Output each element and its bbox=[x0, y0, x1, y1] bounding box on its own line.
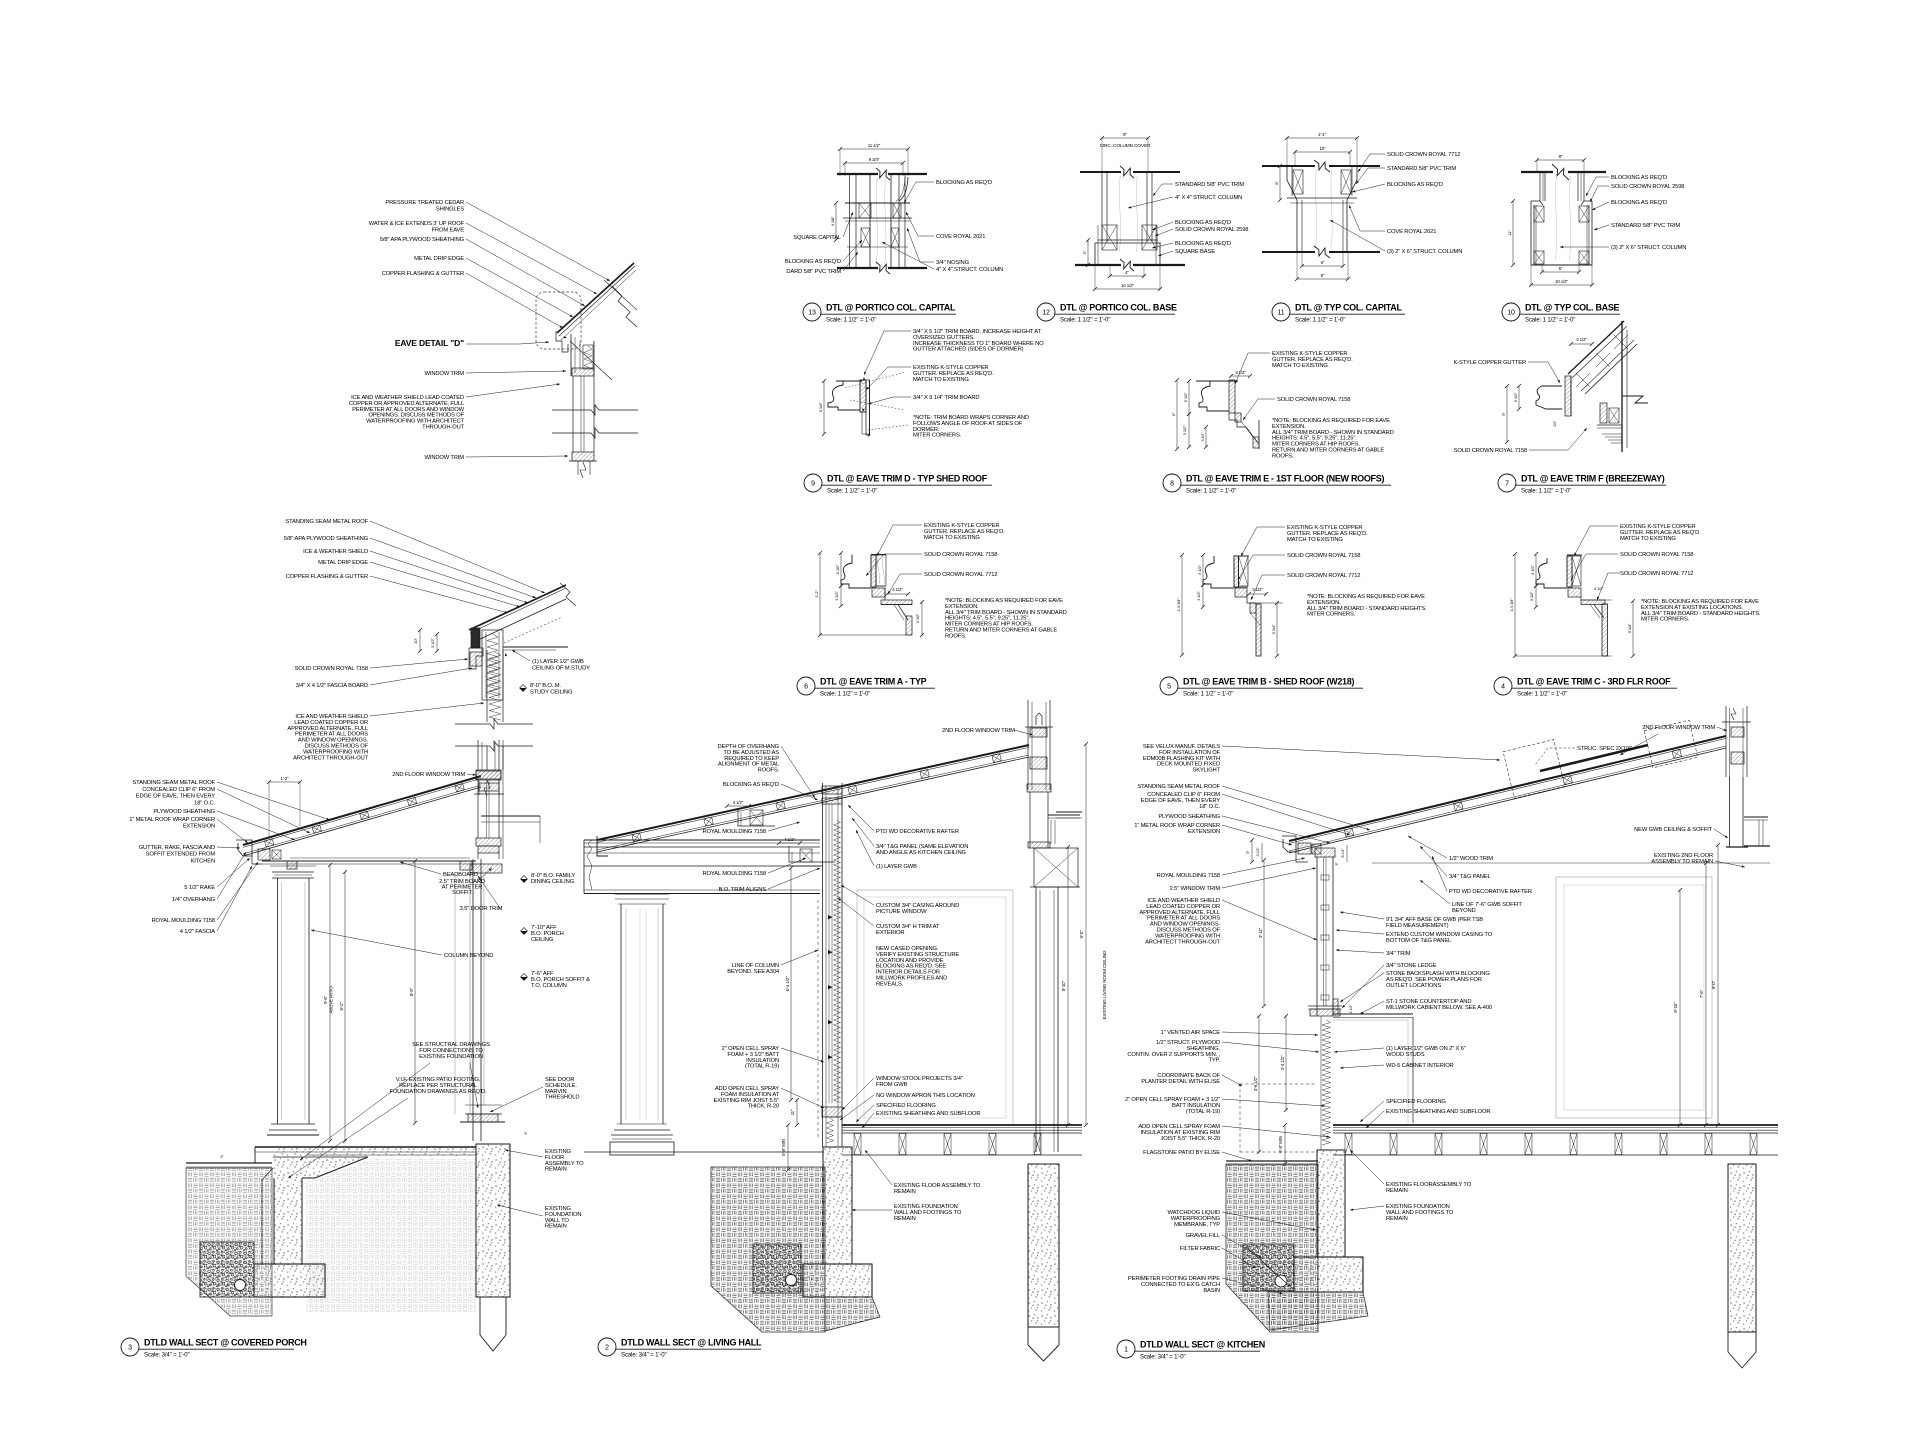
svg-text:6": 6" bbox=[1321, 260, 1325, 265]
svg-text:WINDOW TRIM: WINDOW TRIM bbox=[425, 455, 465, 461]
svg-text:SQUARE BASE: SQUARE BASE bbox=[1175, 249, 1215, 255]
svg-text:SOLID CROWN ROYAL 7158: SOLID CROWN ROYAL 7158 bbox=[1454, 448, 1527, 454]
svg-text:11": 11" bbox=[790, 1109, 795, 1115]
svg-text:DTL @ EAVE TRIM C - 3RD FLR RO: DTL @ EAVE TRIM C - 3RD FLR ROOF bbox=[1517, 677, 1671, 687]
svg-text:1/4" OVERHANG: 1/4" OVERHANG bbox=[172, 897, 216, 903]
svg-text:ROYAL MOULDING 7158: ROYAL MOULDING 7158 bbox=[702, 829, 766, 835]
svg-text:8 1/4": 8 1/4" bbox=[1341, 848, 1345, 858]
svg-text:9 1/4": 9 1/4" bbox=[1627, 623, 1632, 633]
svg-text:3/4" NOSING: 3/4" NOSING bbox=[936, 260, 970, 266]
svg-text:Scale: 1 1/2" = 1'-0": Scale: 1 1/2" = 1'-0" bbox=[827, 488, 877, 495]
svg-text:3: 3 bbox=[128, 1345, 132, 1352]
svg-text:BLOCKING AS REQ’D: BLOCKING AS REQ’D bbox=[1387, 182, 1443, 188]
svg-text:DTL @ TYP COL. CAPITAL: DTL @ TYP COL. CAPITAL bbox=[1295, 303, 1402, 313]
svg-text:Scale: 3/4" = 1'-0": Scale: 3/4" = 1'-0" bbox=[144, 1352, 190, 1359]
svg-text:SOLID CROWN ROYAL 7158: SOLID CROWN ROYAL 7158 bbox=[295, 666, 368, 672]
svg-text:DTL @ TYP COL. BASE: DTL @ TYP COL. BASE bbox=[1525, 303, 1620, 313]
svg-text:EXISTING LIVING ROOM CEILING: EXISTING LIVING ROOM CEILING bbox=[1102, 950, 1107, 1019]
svg-text:1" VENTED AIR SPACE: 1" VENTED AIR SPACE bbox=[1161, 1030, 1221, 1036]
svg-text:4 1/2": 4 1/2" bbox=[892, 587, 903, 592]
svg-text:Scale: 1 1/2" = 1'-0": Scale: 1 1/2" = 1'-0" bbox=[1060, 317, 1110, 324]
svg-text:4 1/8": 4 1/8" bbox=[830, 216, 835, 226]
svg-text:STANDARD 5/8" PVC TRIM: STANDARD 5/8" PVC TRIM bbox=[1175, 182, 1244, 188]
svg-text:LINE OF COLUMNBEYOND. SEE A304: LINE OF COLUMNBEYOND. SEE A304 bbox=[727, 963, 780, 975]
svg-text:PTD WD DECORATIVE RAFTER: PTD WD DECORATIVE RAFTER bbox=[1449, 889, 1532, 895]
svg-text:DTL @ EAVE TRIM B - SHED ROOF: DTL @ EAVE TRIM B - SHED ROOF (W218) bbox=[1183, 677, 1354, 687]
svg-text:6: 6 bbox=[804, 684, 808, 691]
svg-text:SOLID CROWN ROYAL 7158: SOLID CROWN ROYAL 7158 bbox=[1620, 552, 1693, 558]
svg-text:V.I.F. EXISTING PATIO FOOTING.: V.I.F. EXISTING PATIO FOOTING.REPLACE PE… bbox=[389, 1077, 487, 1095]
svg-text:FLAGSTONE PATIO BY ELISE: FLAGSTONE PATIO BY ELISE bbox=[1143, 1150, 1220, 1156]
svg-text:3 1/2": 3 1/2" bbox=[915, 613, 920, 623]
svg-text:3 1/2": 3 1/2" bbox=[1182, 425, 1187, 435]
svg-text:8'-0": 8'-0" bbox=[1711, 980, 1716, 989]
svg-text:WINDOW TRIM: WINDOW TRIM bbox=[425, 371, 465, 377]
svg-text:Scale: 1 1/2" = 1'-0": Scale: 1 1/2" = 1'-0" bbox=[1521, 488, 1571, 495]
svg-text:WATCHDOG LIQUIDWATERPROOFINGME: WATCHDOG LIQUIDWATERPROOFINGMEMBRANE, TY… bbox=[1168, 1210, 1221, 1228]
svg-text:4": 4" bbox=[1125, 270, 1129, 275]
svg-text:13: 13 bbox=[808, 310, 816, 317]
svg-text:GRAVEL FILL: GRAVEL FILL bbox=[1186, 1233, 1221, 1239]
svg-text:5 1/2": 5 1/2" bbox=[835, 564, 840, 574]
svg-text:(1) LAYER GWB: (1) LAYER GWB bbox=[876, 864, 917, 870]
svg-text:SQUARE CAPITAL: SQUARE CAPITAL bbox=[793, 235, 842, 241]
svg-text:Scale: 1 1/2" = 1'-0": Scale: 1 1/2" = 1'-0" bbox=[826, 317, 876, 324]
svg-text:STANDING SEAM METAL ROOF: STANDING SEAM METAL ROOF bbox=[1137, 784, 1220, 790]
svg-text:STANDARD 5/8" PVC TRIM: STANDARD 5/8" PVC TRIM bbox=[1387, 166, 1456, 172]
svg-text:1'-5 3/4": 1'-5 3/4" bbox=[1509, 598, 1514, 612]
svg-text:6": 6" bbox=[1559, 266, 1563, 271]
svg-text:ROYAL MOULDING 7158: ROYAL MOULDING 7158 bbox=[1156, 873, 1220, 879]
svg-text:DTLD WALL SECT @ LIVING HALL: DTLD WALL SECT @ LIVING HALL bbox=[621, 1338, 762, 1348]
svg-text:4: 4 bbox=[1501, 684, 1505, 691]
svg-text:3 1/2": 3 1/2" bbox=[1256, 847, 1260, 857]
svg-text:11: 11 bbox=[1278, 310, 1285, 317]
svg-text:9'-0": 9'-0" bbox=[1079, 930, 1084, 939]
svg-text:BLOCKING AS REQ’D: BLOCKING AS REQ’D bbox=[785, 259, 841, 265]
svg-text:9 1/4": 9 1/4" bbox=[818, 402, 823, 412]
svg-text:Scale: 1 1/2" = 1'-0": Scale: 1 1/2" = 1'-0" bbox=[1186, 488, 1236, 495]
svg-text:SOLID CROWN ROYAL 7158: SOLID CROWN ROYAL 7158 bbox=[1277, 397, 1350, 403]
svg-text:8'-0" B.O. FAMILYDINING CEILIN: 8'-0" B.O. FAMILYDINING CEILING bbox=[531, 873, 575, 885]
svg-text:Scale: 1 1/2" = 1'-0": Scale: 1 1/2" = 1'-0" bbox=[1295, 317, 1345, 324]
svg-text:B.O. TRIM ALIGNS: B.O. TRIM ALIGNS bbox=[719, 887, 767, 893]
svg-text:8'-1": 8'-1" bbox=[339, 1002, 344, 1011]
svg-text:Scale: 3/4" = 1'-0": Scale: 3/4" = 1'-0" bbox=[1140, 1354, 1186, 1361]
svg-text:BLOCKING AS REQ’D: BLOCKING AS REQ’D bbox=[723, 782, 779, 788]
svg-text:8'-10": 8'-10" bbox=[1061, 980, 1066, 991]
svg-text:Scale: 1 1/2" = 1'-0": Scale: 1 1/2" = 1'-0" bbox=[820, 691, 870, 698]
svg-text:Scale: 1 1/2" = 1'-0": Scale: 1 1/2" = 1'-0" bbox=[1183, 691, 1233, 698]
svg-text:COVE ROYAL 2021: COVE ROYAL 2021 bbox=[936, 234, 985, 240]
svg-text:SPECIFIED FLOORING: SPECIFIED FLOORING bbox=[876, 1103, 936, 1109]
svg-text:SOLID CROWN ROYAL 7712: SOLID CROWN ROYAL 7712 bbox=[924, 572, 997, 578]
svg-text:DTL @ EAVE TRIM F (BREEZEWAY): DTL @ EAVE TRIM F (BREEZEWAY) bbox=[1521, 474, 1665, 484]
svg-text:SOLID CROWN ROYAL 2598: SOLID CROWN ROYAL 2598 bbox=[1611, 184, 1684, 190]
svg-text:4" X 4" STRUCT. COLUMN: 4" X 4" STRUCT. COLUMN bbox=[1175, 195, 1242, 201]
svg-text:1'-2": 1'-2" bbox=[281, 776, 290, 781]
svg-text:DTLD WALL SECT @ KITCHEN: DTLD WALL SECT @ KITCHEN bbox=[1140, 1340, 1265, 1350]
svg-text:SEE STRUCTRAL DRAWINGSFOR CONN: SEE STRUCTRAL DRAWINGSFOR CONNECTIONS TO… bbox=[412, 1042, 490, 1060]
svg-text:10 1/2": 10 1/2" bbox=[1121, 283, 1134, 288]
svg-text:EXISTING 2ND FLOORASSEMBLY TO: EXISTING 2ND FLOORASSEMBLY TO REMAIN bbox=[1651, 853, 1713, 865]
svg-text:BLOCKING AS REQ’D: BLOCKING AS REQ’D bbox=[1611, 175, 1667, 181]
svg-text:STANDARD 5/8" PVC TRIM: STANDARD 5/8" PVC TRIM bbox=[1611, 223, 1680, 229]
svg-text:1'-1": 1'-1" bbox=[1318, 132, 1327, 137]
svg-text:DTL @ PORTICO COL. BASE: DTL @ PORTICO COL. BASE bbox=[1060, 303, 1177, 313]
svg-text:4 1/2": 4 1/2" bbox=[784, 837, 795, 842]
svg-text:5 1/2": 5 1/2" bbox=[1530, 565, 1535, 575]
svg-text:6'-4 1/2": 6'-4 1/2" bbox=[785, 976, 790, 991]
svg-text:10 1/2": 10 1/2" bbox=[1555, 279, 1568, 284]
svg-text:ROYAL MOULDING 7158: ROYAL MOULDING 7158 bbox=[151, 918, 215, 924]
svg-text:1'-5 3/4": 1'-5 3/4" bbox=[1176, 598, 1181, 612]
svg-text:(3) 2" X 6" STRUCT. COLUMN: (3) 2" X 6" STRUCT. COLUMN bbox=[1611, 245, 1686, 251]
svg-text:SOLID CROWN ROYAL 7158: SOLID CROWN ROYAL 7158 bbox=[1287, 553, 1360, 559]
svg-text:SPECIFIED FLOORING: SPECIFIED FLOORING bbox=[1386, 1099, 1446, 1105]
svg-text:5 1/2": 5 1/2" bbox=[430, 638, 435, 648]
svg-text:8: 8 bbox=[1170, 481, 1174, 488]
svg-text:SOLID CROWN ROYAL 2598: SOLID CROWN ROYAL 2598 bbox=[1175, 227, 1248, 233]
svg-text:2ND FLOOR WINDOW TRIM: 2ND FLOOR WINDOW TRIM bbox=[392, 772, 465, 778]
svg-text:PLYWOOD SHEATHING: PLYWOOD SHEATHING bbox=[1158, 814, 1220, 820]
svg-text:Scale: 1 1/2" = 1'-0": Scale: 1 1/2" = 1'-0" bbox=[1525, 317, 1575, 324]
svg-text:4 1/2" FASCIA: 4 1/2" FASCIA bbox=[180, 929, 216, 935]
svg-text:9 1/4": 9 1/4" bbox=[1271, 624, 1276, 634]
svg-text:Scale: 1 1/2" = 1'-0": Scale: 1 1/2" = 1'-0" bbox=[1517, 691, 1567, 698]
svg-text:3/4" STONE LEDGE: 3/4" STONE LEDGE bbox=[1386, 963, 1437, 969]
svg-text:8'-10": 8'-10" bbox=[1673, 1002, 1678, 1013]
svg-text:5 1/2" RAKE: 5 1/2" RAKE bbox=[184, 885, 215, 891]
svg-text:SOLID CROWN ROYAL 7712: SOLID CROWN ROYAL 7712 bbox=[1620, 571, 1693, 577]
svg-text:3 1/2": 3 1/2" bbox=[1252, 587, 1263, 592]
svg-text:BLOCKING AS REQ’D: BLOCKING AS REQ’D bbox=[1175, 241, 1231, 247]
svg-text:COVE ROYAL 2021: COVE ROYAL 2021 bbox=[1387, 229, 1436, 235]
svg-text:3'-11": 3'-11" bbox=[1258, 927, 1263, 938]
svg-text:11": 11" bbox=[1507, 230, 1512, 236]
svg-text:METAL DRIP EDGE: METAL DRIP EDGE bbox=[318, 560, 368, 566]
svg-text:7'-6": 7'-6" bbox=[1699, 989, 1704, 998]
svg-text:SEE DOORSCHEDULE.MARVINTHRESHO: SEE DOORSCHEDULE.MARVINTHRESHOLD bbox=[545, 1077, 579, 1101]
svg-text:COPPER FLASHING & GUTTER: COPPER FLASHING & GUTTER bbox=[286, 574, 368, 580]
svg-text:(3) 2" X 6" STRUCT. COLUMN: (3) 2" X 6" STRUCT. COLUMN bbox=[1387, 249, 1462, 255]
svg-text:EXISTING SHEATHING AND SUBFLOO: EXISTING SHEATHING AND SUBFLOOR bbox=[876, 1111, 980, 1117]
svg-text:STANDING SEAM METAL ROOF: STANDING SEAM METAL ROOF bbox=[132, 780, 215, 786]
svg-text:4 1/2": 4 1/2" bbox=[733, 800, 744, 805]
svg-text:WD-5 CABINET INTERIOR: WD-5 CABINET INTERIOR bbox=[1386, 1063, 1454, 1069]
svg-text:12: 12 bbox=[1042, 310, 1050, 317]
svg-text:PLYWOOD SHEATHING: PLYWOOD SHEATHING bbox=[153, 809, 215, 815]
svg-text:BEADBOARD: BEADBOARD bbox=[443, 872, 478, 878]
svg-text:BLOCKING AS REQ’D: BLOCKING AS REQ’D bbox=[1611, 200, 1667, 206]
svg-text:3'-4 1/2": 3'-4 1/2" bbox=[1280, 1055, 1285, 1070]
svg-text:3.5" DOOR TRIM: 3.5" DOOR TRIM bbox=[460, 906, 503, 912]
svg-text:5/8" APA PLYWOOD SHEATHING: 5/8" APA PLYWOOD SHEATHING bbox=[284, 536, 369, 542]
svg-text:7: 7 bbox=[1505, 481, 1509, 488]
svg-text:NEW GWB CEILING & SOFFIT: NEW GWB CEILING & SOFFIT bbox=[1634, 827, 1712, 833]
svg-text:10": 10" bbox=[1320, 146, 1327, 151]
svg-text:METAL DRIP EDGE: METAL DRIP EDGE bbox=[414, 256, 464, 262]
svg-text:CIRC. COLUMN COVER: CIRC. COLUMN COVER bbox=[1100, 143, 1152, 149]
svg-text:ROYAL MOULDING 7158: ROYAL MOULDING 7158 bbox=[702, 871, 766, 877]
svg-text:COPPER FLASHING & GUTTER: COPPER FLASHING & GUTTER bbox=[382, 271, 464, 277]
svg-text:BLOCKING AS REQ’D: BLOCKING AS REQ’D bbox=[936, 180, 992, 186]
svg-text:DARD 5/8" PVC TRIM: DARD 5/8" PVC TRIM bbox=[786, 269, 841, 275]
svg-text:DTL @ EAVE TRIM A - TYP: DTL @ EAVE TRIM A - TYP bbox=[820, 677, 927, 687]
svg-text:DTL @ PORTICO COL. CAPITAL: DTL @ PORTICO COL. CAPITAL bbox=[826, 303, 956, 313]
svg-text:3 1/2": 3 1/2" bbox=[1529, 591, 1534, 601]
svg-text:SOLID CROWN ROYAL 7712: SOLID CROWN ROYAL 7712 bbox=[1387, 152, 1460, 158]
svg-text:3/4" T&G PANEL (SAME ELEVATION: 3/4" T&G PANEL (SAME ELEVATIONAND ANGLE … bbox=[876, 844, 968, 856]
svg-text:FILTER FABRIC: FILTER FABRIC bbox=[1180, 1246, 1220, 1252]
svg-text:10: 10 bbox=[1507, 310, 1515, 317]
svg-text:6'-8" MIN: 6'-8" MIN bbox=[1278, 1136, 1283, 1153]
svg-text:DTL @ EAVE TRIM E - 1ST FLOOR: DTL @ EAVE TRIM E - 1ST FLOOR (NEW ROOFS… bbox=[1186, 474, 1384, 484]
svg-text:K-STYLE COPPER GUTTER: K-STYLE COPPER GUTTER bbox=[1453, 360, 1526, 366]
svg-text:NO WINDOW APRON THIS LOCATION: NO WINDOW APRON THIS LOCATION bbox=[876, 1093, 975, 1099]
svg-text:8": 8" bbox=[1123, 132, 1127, 137]
svg-text:8": 8" bbox=[1321, 273, 1325, 278]
svg-text:3 1/2": 3 1/2" bbox=[834, 591, 839, 601]
svg-text:6'-8" MIN: 6'-8" MIN bbox=[781, 1139, 786, 1156]
svg-text:EXISTING SHEATHING AND SUBFLOO: EXISTING SHEATHING AND SUBFLOOR bbox=[1386, 1109, 1490, 1115]
svg-text:STANDING SEAM METAL ROOF: STANDING SEAM METAL ROOF bbox=[285, 519, 368, 525]
svg-text:10": 10" bbox=[413, 638, 418, 644]
svg-text:(1) LAYER 1/2" GWBCEILING OF M: (1) LAYER 1/2" GWBCEILING OF M.STUDY bbox=[532, 659, 590, 672]
svg-text:3 1/2": 3 1/2" bbox=[1196, 591, 1201, 601]
svg-text:2ND FLOOR WINDOW TRIM: 2ND FLOOR WINDOW TRIM bbox=[942, 728, 1015, 734]
svg-text:ICE & WEATHER SHIELD: ICE & WEATHER SHIELD bbox=[303, 549, 368, 555]
svg-text:SOLID CROWN ROYAL 7158: SOLID CROWN ROYAL 7158 bbox=[924, 552, 997, 558]
svg-text:3/4" T&G PANEL: 3/4" T&G PANEL bbox=[1449, 874, 1492, 880]
svg-text:3/4" X 9 1/4" TRIM BOARD: 3/4" X 9 1/4" TRIM BOARD bbox=[913, 395, 979, 401]
svg-text:PTD WD DECORATIVE RAFTER: PTD WD DECORATIVE RAFTER bbox=[876, 829, 959, 835]
svg-text:SOLID CROWN ROYAL 7712: SOLID CROWN ROYAL 7712 bbox=[1287, 573, 1360, 579]
svg-text:3 3/4": 3 3/4" bbox=[1201, 432, 1205, 442]
svg-text:STRUC. SPEC 2X10S: STRUC. SPEC 2X10S bbox=[1577, 746, 1633, 752]
svg-text:5 1/2": 5 1/2" bbox=[1197, 565, 1202, 575]
svg-text:3/4" X 4 1/2" FASCIA BOARD: 3/4" X 4 1/2" FASCIA BOARD bbox=[296, 683, 368, 689]
svg-text:4'-6 1/2": 4'-6 1/2" bbox=[1253, 1076, 1258, 1091]
svg-text:5/8" APA PLYWOOD SHEATHING: 5/8" APA PLYWOOD SHEATHING bbox=[380, 237, 465, 243]
svg-text:11 1/2": 11 1/2" bbox=[868, 143, 881, 148]
svg-text:8": 8" bbox=[1559, 154, 1563, 159]
svg-text:Scale: 3/4" = 1'-0": Scale: 3/4" = 1'-0" bbox=[621, 1352, 667, 1359]
svg-text:1/2" WOOD TRIM: 1/2" WOOD TRIM bbox=[1449, 856, 1493, 862]
svg-text:9 3/4": 9 3/4" bbox=[869, 157, 880, 162]
svg-text:5: 5 bbox=[1167, 684, 1171, 691]
svg-text:COLUMN BEYOND: COLUMN BEYOND bbox=[444, 953, 493, 959]
svg-text:BLOCKING AS REQ’D: BLOCKING AS REQ’D bbox=[1175, 220, 1231, 226]
svg-text:8'-5": 8'-5" bbox=[409, 987, 414, 996]
svg-text:1'-2": 1'-2" bbox=[814, 590, 819, 598]
svg-text:3/4" TRIM: 3/4" TRIM bbox=[1386, 951, 1411, 957]
svg-text:DTL @ EAVE TRIM D - TYP SHED R: DTL @ EAVE TRIM D - TYP SHED ROOF bbox=[827, 474, 988, 484]
svg-text:1: 1 bbox=[1124, 1347, 1128, 1354]
svg-text:1/4": 1/4" bbox=[1553, 420, 1557, 427]
svg-text:5 1/2": 5 1/2" bbox=[1513, 392, 1518, 402]
svg-text:2.5" WINDOW TRIM: 2.5" WINDOW TRIM bbox=[1170, 886, 1221, 892]
svg-text:9: 9 bbox=[811, 481, 815, 488]
svg-text:4 1/2": 4 1/2" bbox=[1349, 1004, 1353, 1014]
svg-text:EAVE DETAIL "D": EAVE DETAIL "D" bbox=[395, 338, 464, 348]
svg-text:5 1/2": 5 1/2" bbox=[1183, 392, 1188, 402]
svg-text:DTLD WALL SECT @ COVERED PORCH: DTLD WALL SECT @ COVERED PORCH bbox=[144, 1338, 307, 1348]
svg-text:2: 2 bbox=[605, 1345, 609, 1352]
svg-text:3 1/2": 3 1/2" bbox=[1576, 337, 1587, 342]
svg-text:2ND FLOOR WINDOW TRIM: 2ND FLOOR WINDOW TRIM bbox=[1642, 725, 1715, 731]
svg-text:4" X 4" STRUCT. COLUMN: 4" X 4" STRUCT. COLUMN bbox=[936, 267, 1003, 273]
